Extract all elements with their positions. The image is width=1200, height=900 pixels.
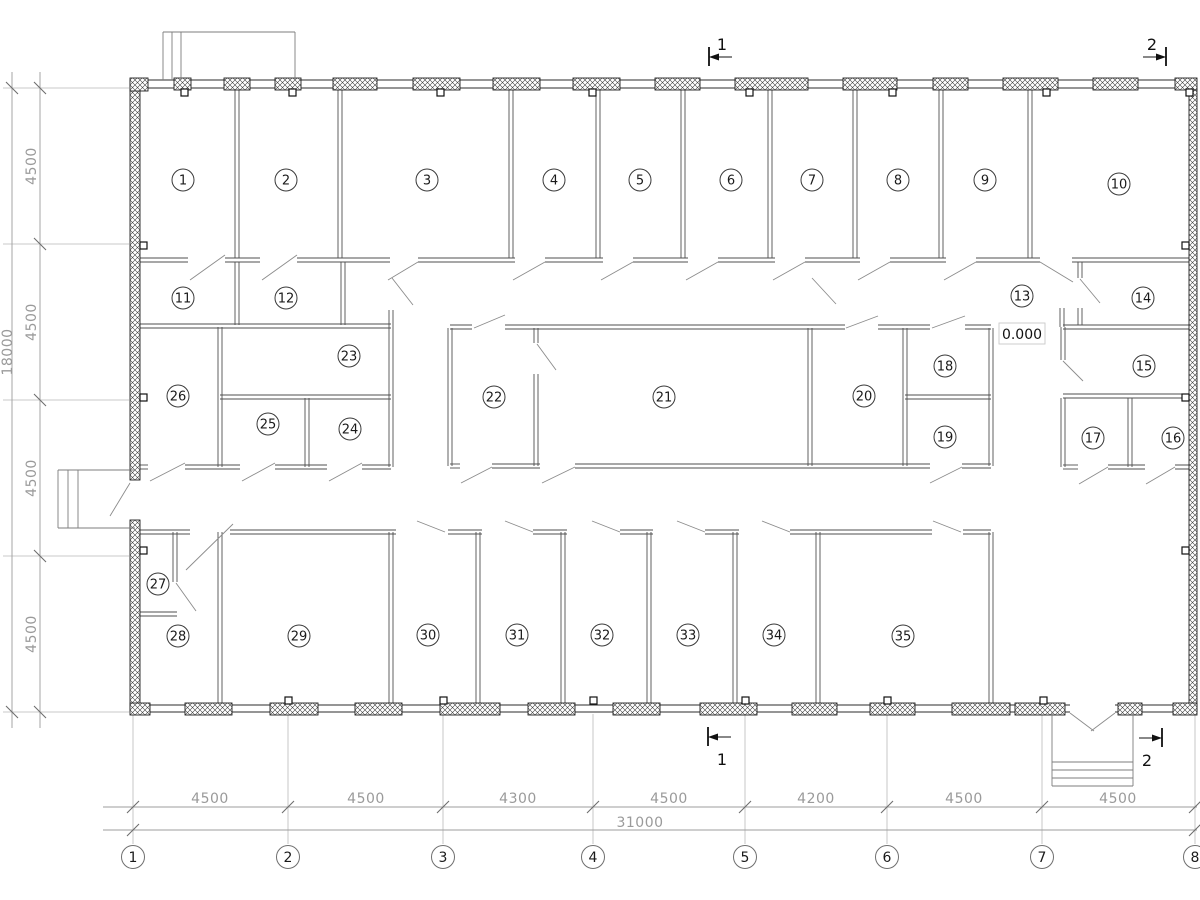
grid-axis-number-8: 8 <box>1191 850 1200 866</box>
elevation-value: 0.000 <box>1002 327 1042 343</box>
dim-bottom-segment-2: 4300 <box>499 791 537 807</box>
dim-left-segment-0: 4500 <box>24 147 40 185</box>
room-number-10: 10 <box>1111 178 1128 193</box>
room-number-14: 14 <box>1135 292 1152 307</box>
room-number-28: 28 <box>170 630 187 645</box>
room-number-12: 12 <box>278 292 295 307</box>
room-number-34: 34 <box>766 629 783 644</box>
grid-axis-number-1: 1 <box>129 850 138 866</box>
room-number-13: 13 <box>1014 290 1031 305</box>
room-number-15: 15 <box>1136 360 1153 375</box>
section-arrow-icon <box>1152 735 1162 742</box>
room-number-21: 21 <box>656 391 673 406</box>
room-number-24: 24 <box>342 423 359 438</box>
dim-left-segment-1: 4500 <box>24 303 40 341</box>
dim-bottom-segment-3: 4500 <box>650 791 688 807</box>
room-number-31: 31 <box>509 629 526 644</box>
grid-axis-number-5: 5 <box>741 850 750 866</box>
room-number-33: 33 <box>680 629 697 644</box>
room-number-23: 23 <box>341 350 358 365</box>
room-number-18: 18 <box>937 360 954 375</box>
dim-left-segment-3: 4500 <box>24 615 40 653</box>
room-number-25: 25 <box>260 418 277 433</box>
floor-plan-page: 1234567891011121314151617181920212223242… <box>0 0 1200 900</box>
room-number-29: 29 <box>291 630 308 645</box>
section-arrow-icon <box>1156 54 1166 61</box>
room-number-1: 1 <box>179 174 187 189</box>
room-number-3: 3 <box>423 174 431 189</box>
section-marker-label-1: 1 <box>717 750 727 769</box>
room-number-5: 5 <box>636 174 644 189</box>
grid-axis-number-4: 4 <box>589 850 598 866</box>
dim-bottom-segment-4: 4200 <box>797 791 835 807</box>
elevation-label: 0.000 <box>999 323 1045 344</box>
room-number-32: 32 <box>594 629 611 644</box>
section-markers: 1122 <box>708 35 1166 770</box>
room-number-16: 16 <box>1165 432 1182 447</box>
room-number-17: 17 <box>1085 432 1102 447</box>
grid-axis-number-3: 3 <box>439 850 448 866</box>
dim-bottom-overall: 31000 <box>616 815 663 831</box>
floor-plan-drawing: 1234567891011121314151617181920212223242… <box>0 0 1200 900</box>
section-arrow-icon <box>708 734 718 741</box>
room-number-2: 2 <box>282 174 290 189</box>
room-number-7: 7 <box>808 174 816 189</box>
room-number-26: 26 <box>170 390 187 405</box>
grid-axis-number-6: 6 <box>883 850 892 866</box>
section-arrow-icon <box>709 54 719 61</box>
dimension-labels: 4500450043004500420045004500310004500450… <box>0 147 1137 831</box>
dim-bottom-segment-1: 4500 <box>347 791 385 807</box>
section-marker-label-1: 1 <box>717 35 727 54</box>
room-number-22: 22 <box>486 391 503 406</box>
room-number-8: 8 <box>894 174 902 189</box>
grid-axis-number-7: 7 <box>1038 850 1047 866</box>
porch-layer <box>58 32 1133 786</box>
dim-bottom-segment-5: 4500 <box>945 791 983 807</box>
room-number-11: 11 <box>175 292 192 307</box>
section-marker-label-2: 2 <box>1142 751 1152 770</box>
grid-axis-labels: 12345678 <box>122 846 1200 869</box>
section-marker-label-2: 2 <box>1147 35 1157 54</box>
dim-bottom-segment-6: 4500 <box>1099 791 1137 807</box>
dim-left-overall: 18000 <box>0 328 16 375</box>
room-number-30: 30 <box>420 629 437 644</box>
dim-left-segment-2: 4500 <box>24 459 40 497</box>
dim-bottom-segment-0: 4500 <box>191 791 229 807</box>
room-number-6: 6 <box>727 174 735 189</box>
room-number-19: 19 <box>937 431 954 446</box>
room-number-20: 20 <box>856 390 873 405</box>
room-number-9: 9 <box>981 174 989 189</box>
room-number-35: 35 <box>895 630 912 645</box>
room-number-27: 27 <box>150 578 167 593</box>
grid-axis-number-2: 2 <box>284 850 293 866</box>
room-number-4: 4 <box>550 174 558 189</box>
